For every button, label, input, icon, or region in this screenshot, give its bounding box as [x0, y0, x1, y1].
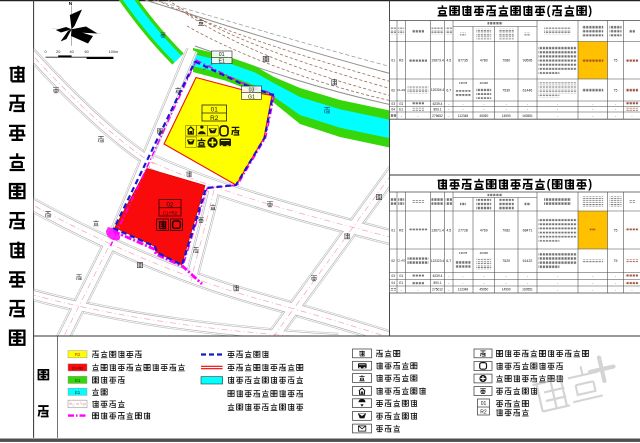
- svg-text:03: 03: [249, 88, 255, 94]
- svg-text:04: 04: [391, 107, 395, 111]
- svg-text:R2: R2: [399, 59, 404, 63]
- svg-text:0: 0: [44, 50, 46, 54]
- svg-text:87735: 87735: [458, 59, 468, 63]
- svg-text:02: 02: [391, 259, 395, 263]
- svg-text:6239.4: 6239.4: [433, 274, 443, 278]
- svg-text:C1+R2: C1+R2: [397, 88, 406, 92]
- svg-text:99595: 99595: [523, 59, 533, 63]
- svg-text:R2: R2: [480, 410, 487, 416]
- svg-text:7082: 7082: [502, 228, 510, 232]
- svg-text:160551: 160551: [522, 288, 533, 292]
- svg-text:112348: 112348: [458, 288, 469, 292]
- svg-text:7530: 7530: [502, 88, 510, 92]
- svg-text:4769: 4769: [480, 228, 488, 232]
- svg-text:01: 01: [219, 52, 225, 58]
- svg-text:14590: 14590: [502, 114, 511, 118]
- svg-text:C1+R2: C1+R2: [163, 211, 178, 216]
- svg-text:75: 75: [614, 228, 618, 232]
- svg-text:14590: 14590: [502, 288, 511, 292]
- svg-text:01: 01: [481, 401, 487, 407]
- svg-text:112348: 112348: [458, 114, 469, 118]
- svg-text:893.1: 893.1: [434, 107, 442, 111]
- svg-text:4780: 4780: [480, 59, 488, 63]
- svg-text:G1: G1: [399, 274, 403, 278]
- svg-text:(: (: [547, 179, 551, 191]
- svg-text:122323.4: 122323.4: [431, 259, 445, 263]
- svg-text:02: 02: [167, 201, 174, 208]
- svg-text:45050: 45050: [479, 288, 488, 292]
- svg-text:C1+R2: C1+R2: [397, 259, 406, 263]
- svg-text:100m: 100m: [109, 50, 119, 54]
- svg-text:E1: E1: [219, 59, 225, 65]
- svg-text:75: 75: [614, 59, 618, 63]
- svg-text:): ): [588, 6, 592, 18]
- svg-text:19673.4: 19673.4: [431, 59, 444, 63]
- svg-text:27728: 27728: [458, 228, 468, 232]
- svg-text:4.5: 4.5: [446, 228, 451, 232]
- svg-text:04: 04: [391, 281, 395, 285]
- svg-text:6.7: 6.7: [446, 88, 451, 92]
- svg-text:): ): [588, 179, 592, 191]
- svg-text:01: 01: [211, 107, 219, 114]
- svg-text:13578: 13578: [459, 251, 468, 255]
- svg-text:R2: R2: [75, 352, 81, 357]
- svg-text:4.5: 4.5: [446, 59, 451, 63]
- svg-text:40338: 40338: [480, 251, 489, 255]
- svg-text:01: 01: [391, 228, 395, 232]
- svg-text:02: 02: [391, 88, 395, 92]
- svg-text:40: 40: [69, 50, 73, 54]
- svg-text:E1: E1: [399, 107, 403, 111]
- svg-text:03: 03: [391, 102, 395, 106]
- svg-text:01: 01: [391, 59, 395, 63]
- svg-text:60: 60: [84, 50, 88, 54]
- svg-text:G1: G1: [248, 94, 255, 100]
- svg-text:(: (: [547, 6, 551, 18]
- svg-text:03: 03: [391, 274, 395, 278]
- svg-text:20: 20: [56, 50, 60, 54]
- svg-text:45050: 45050: [479, 114, 488, 118]
- svg-text:40338: 40338: [480, 81, 489, 85]
- svg-text:160551: 160551: [522, 114, 533, 118]
- svg-text:75: 75: [614, 88, 618, 92]
- svg-text:G1: G1: [399, 102, 403, 106]
- svg-text:7520: 7520: [502, 259, 510, 263]
- svg-text:61422: 61422: [523, 259, 533, 263]
- svg-text:7080: 7080: [502, 59, 510, 63]
- svg-text:6239.4: 6239.4: [433, 102, 443, 106]
- svg-text:N: N: [69, 1, 73, 7]
- svg-text:6.7: 6.7: [446, 259, 451, 263]
- svg-text:R2: R2: [210, 115, 219, 122]
- svg-text:120304.4: 120304.4: [431, 88, 445, 92]
- svg-text:G1: G1: [75, 378, 81, 383]
- svg-text:893.1: 893.1: [434, 281, 442, 285]
- svg-text:13671.4: 13671.4: [431, 228, 444, 232]
- svg-text:E1: E1: [399, 281, 403, 285]
- svg-text:61446: 61446: [523, 88, 533, 92]
- svg-text:C1+R2: C1+R2: [72, 366, 83, 370]
- svg-text:E1: E1: [75, 390, 81, 395]
- svg-text:275012: 275012: [432, 288, 443, 292]
- svg-text:275652: 275652: [432, 114, 443, 118]
- svg-text:R2: R2: [399, 228, 404, 232]
- svg-text:75: 75: [614, 259, 618, 263]
- svg-text:68471: 68471: [523, 228, 533, 232]
- svg-text:13578: 13578: [459, 81, 468, 85]
